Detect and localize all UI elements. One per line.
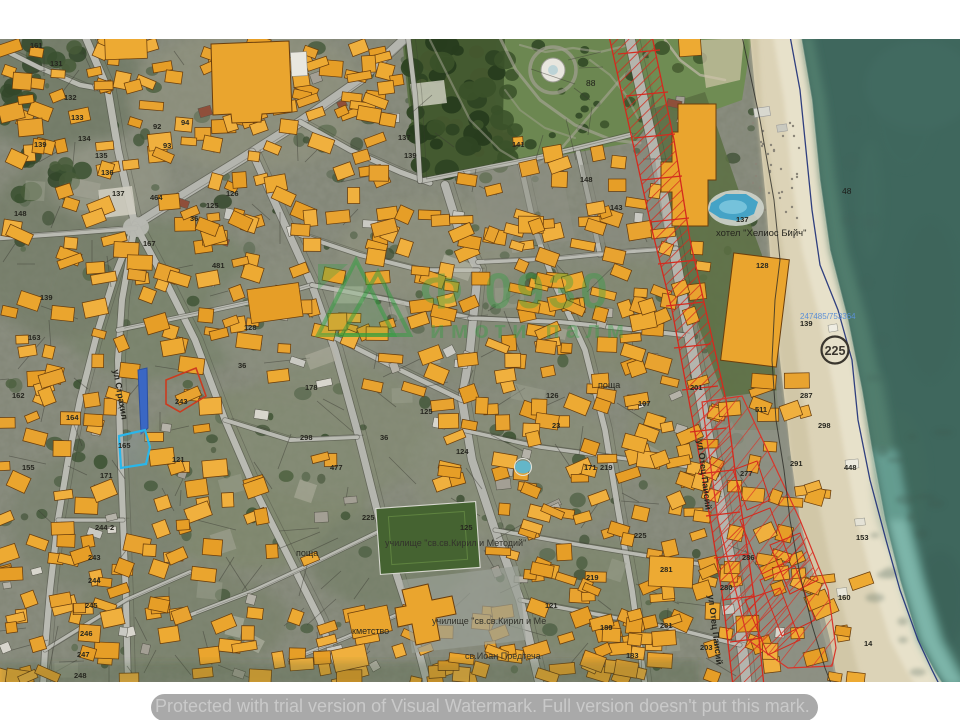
svg-text:481: 481: [212, 261, 225, 270]
svg-text:161: 161: [30, 41, 43, 50]
svg-text:125: 125: [206, 201, 219, 210]
svg-text:148: 148: [14, 209, 27, 218]
svg-text:124: 124: [456, 447, 469, 456]
svg-text:128: 128: [756, 261, 769, 270]
svg-text:167: 167: [143, 239, 156, 248]
svg-text:36: 36: [190, 214, 198, 223]
svg-text:245: 245: [85, 601, 98, 610]
svg-text:183: 183: [626, 651, 639, 660]
svg-text:225: 225: [362, 513, 375, 522]
svg-text:171: 171: [100, 471, 113, 480]
svg-text:48: 48: [842, 186, 852, 196]
svg-text:139: 139: [34, 140, 47, 149]
svg-text:248: 248: [74, 671, 87, 680]
svg-text:92: 92: [153, 122, 161, 131]
svg-text:281: 281: [660, 565, 673, 574]
svg-text:училище "св.св.Кирил и Ме: училище "св.св.Кирил и Ме: [432, 616, 546, 626]
svg-text:243: 243: [88, 553, 101, 562]
svg-text:136: 136: [101, 168, 114, 177]
svg-text:135: 135: [95, 151, 108, 160]
svg-text:201: 201: [690, 383, 703, 392]
svg-text:464: 464: [150, 193, 163, 202]
svg-text:94: 94: [181, 118, 190, 127]
svg-text:155: 155: [22, 463, 35, 472]
svg-text:244: 244: [88, 576, 101, 585]
svg-text:448: 448: [844, 463, 857, 472]
svg-text:225: 225: [634, 531, 647, 540]
svg-text:298: 298: [818, 421, 831, 430]
svg-text:141: 141: [512, 140, 525, 149]
svg-text:219: 219: [586, 573, 599, 582]
svg-text:137: 137: [736, 215, 749, 224]
svg-text:14: 14: [864, 639, 873, 648]
svg-text:Protected with trial version o: Protected with trial version of Visual W…: [155, 696, 810, 716]
svg-text:125: 125: [460, 523, 473, 532]
svg-text:165: 165: [118, 441, 131, 450]
svg-text:137: 137: [112, 189, 125, 198]
svg-text:287: 287: [800, 391, 813, 400]
svg-text:училище "св.св.Кирил и Методий: училище "св.св.Кирил и Методий": [385, 538, 526, 548]
svg-text:143: 143: [610, 203, 623, 212]
svg-text:121: 121: [172, 455, 185, 464]
svg-text:132: 132: [64, 93, 77, 102]
svg-text:244-2: 244-2: [95, 523, 114, 532]
svg-text:кметство: кметство: [352, 626, 389, 636]
svg-text:281: 281: [660, 621, 673, 630]
svg-text:163: 163: [28, 333, 41, 342]
svg-text:св.Иоан Предтеча: св.Иоан Предтеча: [465, 651, 541, 661]
svg-text:Ф 0930: Ф 0930: [420, 263, 612, 319]
svg-text:511: 511: [755, 405, 767, 414]
svg-text:125: 125: [420, 407, 433, 416]
svg-text:36: 36: [238, 361, 246, 370]
svg-text:164: 164: [66, 413, 79, 422]
svg-text:243: 243: [175, 397, 188, 406]
svg-text:153: 153: [856, 533, 869, 542]
svg-text:поща: поща: [598, 380, 620, 390]
svg-text:131: 131: [50, 59, 63, 68]
svg-text:36: 36: [380, 433, 388, 442]
svg-text:23: 23: [552, 421, 560, 430]
svg-text:139: 139: [800, 319, 813, 328]
svg-text:93: 93: [163, 141, 171, 150]
svg-text:121: 121: [545, 601, 558, 610]
svg-text:189: 189: [600, 623, 613, 632]
svg-text:128: 128: [244, 323, 257, 332]
svg-text:160: 160: [838, 593, 851, 602]
svg-text:88: 88: [586, 78, 596, 88]
svg-text:поща: поща: [296, 548, 318, 558]
svg-text:126: 126: [226, 189, 239, 198]
svg-text:хотел "Хелиос Бийч": хотел "Хелиос Бийч": [716, 228, 806, 239]
svg-text:107: 107: [638, 399, 651, 408]
svg-text:298: 298: [300, 433, 313, 442]
svg-text:137: 137: [398, 133, 411, 142]
svg-text:286: 286: [742, 553, 755, 562]
svg-text:280: 280: [720, 583, 733, 592]
svg-text:139: 139: [404, 151, 417, 160]
svg-text:133: 133: [71, 113, 84, 122]
svg-text:277: 277: [740, 469, 753, 478]
svg-text:148: 148: [580, 175, 593, 184]
svg-text:178: 178: [305, 383, 318, 392]
svg-text:219: 219: [600, 463, 613, 472]
svg-text:246: 246: [80, 629, 93, 638]
svg-text:247: 247: [77, 650, 90, 659]
svg-text:291: 291: [790, 459, 803, 468]
svg-text:126: 126: [546, 391, 559, 400]
svg-text:203: 203: [700, 643, 713, 652]
svg-text:225: 225: [825, 344, 846, 358]
svg-text:171: 171: [584, 463, 597, 472]
svg-text:134: 134: [78, 134, 91, 143]
svg-text:162: 162: [12, 391, 25, 400]
svg-text:139: 139: [40, 293, 53, 302]
svg-text:имоти палм: имоти палм: [430, 317, 630, 344]
svg-text:477: 477: [330, 463, 343, 472]
